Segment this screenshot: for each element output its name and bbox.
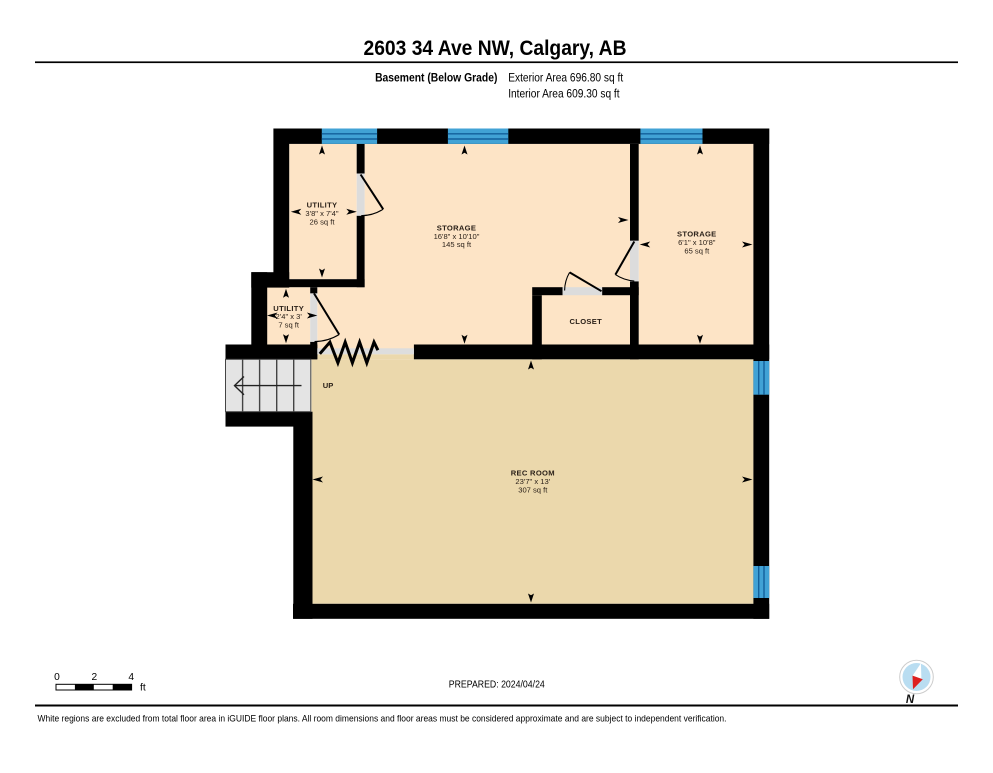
svg-text:Exterior Area 696.80 sq ft: Exterior Area 696.80 sq ft	[508, 71, 623, 85]
svg-text:4: 4	[128, 672, 134, 683]
svg-text:Basement (Below Grade): Basement (Below Grade)	[375, 71, 497, 85]
svg-text:Interior Area 609.30 sq ft: Interior Area 609.30 sq ft	[508, 87, 620, 101]
svg-text:2: 2	[91, 672, 97, 683]
svg-text:PREPARED: 2024/04/24: PREPARED: 2024/04/24	[449, 680, 545, 691]
svg-text:26 sq ft: 26 sq ft	[310, 217, 336, 226]
svg-text:White regions are excluded fro: White regions are excluded from total fl…	[38, 714, 727, 725]
svg-text:UP: UP	[323, 381, 334, 390]
svg-text:ft: ft	[140, 683, 146, 694]
svg-text:0: 0	[54, 672, 60, 683]
svg-text:2603 34 Ave NW, Calgary, AB: 2603 34 Ave NW, Calgary, AB	[364, 36, 627, 60]
svg-text:N: N	[906, 694, 915, 706]
svg-text:145 sq ft: 145 sq ft	[442, 240, 472, 249]
svg-text:CLOSET: CLOSET	[569, 317, 602, 326]
svg-text:65 sq ft: 65 sq ft	[684, 246, 710, 255]
svg-text:307 sq ft: 307 sq ft	[518, 486, 548, 495]
svg-text:7 sq ft: 7 sq ft	[278, 321, 300, 330]
